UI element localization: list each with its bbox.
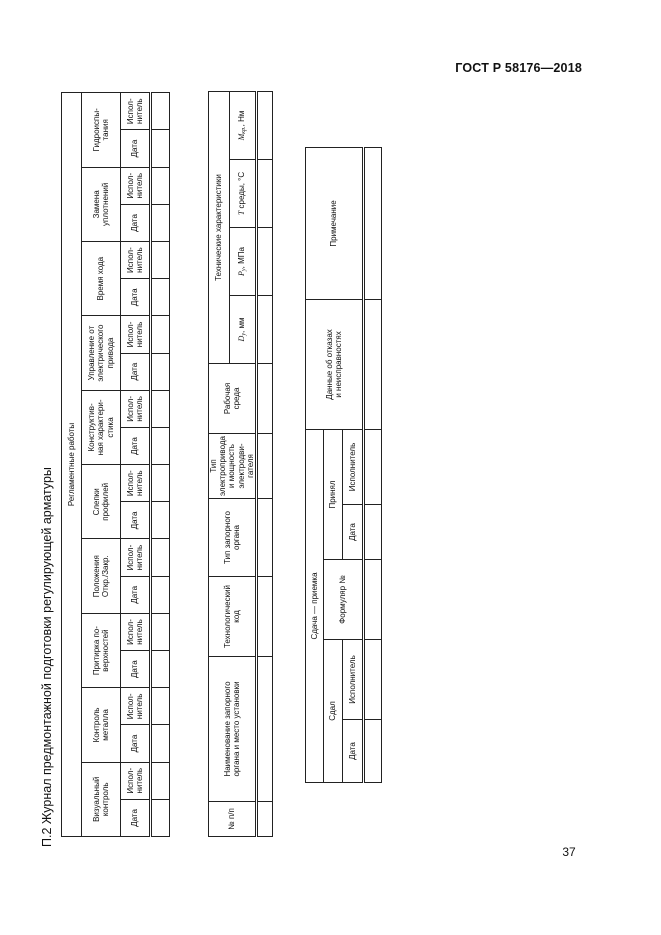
empty-form-cell [151, 688, 170, 725]
parameter-symbol: D [237, 336, 246, 342]
empty-form-cell [151, 353, 170, 390]
header-delivered-by: Сдал [324, 640, 343, 783]
header-travel-time: Время хода [82, 242, 121, 316]
empty-form-cell [151, 316, 170, 353]
parameter-symbol: Т [237, 211, 246, 215]
parameter-unit: среды, °С [237, 172, 246, 211]
empty-form-cell [151, 204, 170, 241]
empty-form-cell [256, 802, 272, 837]
subheader-executor: Испол- нитель [121, 93, 151, 130]
header-hydro-tests: Гидроиспы- тания [82, 93, 121, 168]
empty-form-cell [256, 499, 272, 577]
empty-form-cell [151, 502, 170, 539]
empty-form-cell [364, 429, 382, 504]
empty-form-cell [151, 613, 170, 650]
subheader-date: Дата [121, 204, 151, 241]
header-surface-lapping: Притирка по- верхностей [82, 613, 121, 687]
parameter-subscript: кр. [241, 126, 247, 133]
scheduled-works-table: Регламентные работы Визуальный контроль … [61, 92, 170, 837]
header-nominal-diameter: Dу, мм [229, 296, 256, 364]
empty-form-cell [256, 92, 272, 160]
subheader-date: Дата [121, 651, 151, 688]
empty-form-cell [364, 505, 382, 560]
header-item-number: № п/п [209, 802, 257, 837]
empty-form-cell [364, 720, 382, 783]
header-form-number: Формуляр № [324, 560, 364, 640]
document-page: ГОСТ Р 58176—2018 П.2 Журнал предмонтажн… [0, 0, 661, 935]
empty-form-cell [256, 577, 272, 657]
empty-form-cell [151, 279, 170, 316]
parameter-unit: , мм [237, 318, 246, 333]
subheader-executor: Исполнитель [343, 429, 364, 504]
empty-form-cell [151, 465, 170, 502]
empty-form-cell [151, 651, 170, 688]
valve-identification-table: № п/п Наименование запорного органа и ме… [208, 91, 273, 837]
header-valve-name-location: Наименование запорного органа и место ус… [209, 657, 257, 802]
subheader-date: Дата [121, 502, 151, 539]
empty-form-cell [256, 296, 272, 364]
empty-form-cell [364, 299, 382, 429]
header-nominal-pressure: Pу, МПа [229, 228, 256, 296]
subheader-executor: Испол- нитель [121, 316, 151, 353]
header-technical-characteristics: Технические характеристики [209, 92, 230, 364]
parameter-unit: , МПа [237, 247, 246, 268]
empty-form-cell [151, 130, 170, 167]
empty-form-cell [256, 228, 272, 296]
empty-form-cell [151, 799, 170, 836]
subheader-executor: Исполнитель [343, 640, 364, 720]
empty-form-cell [256, 434, 272, 499]
header-seal-replacement: Замена уплотнений [82, 167, 121, 241]
parameter-symbol: М [237, 134, 246, 141]
empty-form-cell [151, 93, 170, 130]
header-shutoff-type: Тип запорного органа [209, 499, 257, 577]
subheader-executor: Испол- нитель [121, 390, 151, 427]
subheader-executor: Испол- нитель [121, 613, 151, 650]
parameter-subscript: у [241, 333, 247, 336]
header-design-characteristic: Конструктив- ная характери- стика [82, 390, 121, 464]
appendix-title: П.2 Журнал предмонтажной подготовки регу… [40, 467, 54, 847]
subheader-date: Дата [121, 576, 151, 613]
subheader-executor: Испол- нитель [121, 539, 151, 576]
empty-form-cell [151, 242, 170, 279]
parameter-unit: , Нм [237, 111, 246, 127]
subheader-date: Дата [121, 725, 151, 762]
subheader-date: Дата [343, 505, 364, 560]
empty-form-cell [151, 576, 170, 613]
subheader-date: Дата [121, 279, 151, 316]
subheader-date: Дата [121, 130, 151, 167]
empty-form-cell [364, 147, 382, 299]
subheader-executor: Испол- нитель [121, 688, 151, 725]
header-failure-data: Данные об отказах и неисправностях [306, 299, 364, 429]
subheader-date: Дата [121, 427, 151, 464]
header-metal-control: Контроль металла [82, 688, 121, 762]
header-drive-type-power: Тип электропривода и мощность электродви… [209, 434, 257, 499]
handover-acceptance-table: Сдача — приемка Данные об отказах и неис… [305, 147, 382, 783]
subheader-executor: Испол- нитель [121, 762, 151, 799]
page-number: 37 [554, 845, 584, 859]
subheader-executor: Испол- нитель [121, 242, 151, 279]
subheader-date: Дата [121, 799, 151, 836]
empty-form-cell [151, 427, 170, 464]
subheader-date: Дата [121, 353, 151, 390]
header-torque: Мкр., Нм [229, 92, 256, 160]
empty-form-cell [151, 539, 170, 576]
empty-form-cell [151, 390, 170, 427]
header-handover-acceptance: Сдача — приемка [306, 429, 324, 782]
subheader-executor: Испол- нитель [121, 465, 151, 502]
works-table-title: Регламентные работы [62, 93, 82, 837]
header-technological-code: Технологический код [209, 577, 257, 657]
empty-form-cell [151, 167, 170, 204]
subheader-executor: Испол- нитель [121, 167, 151, 204]
header-profile-casts: Слепки профилей [82, 465, 121, 539]
header-open-close-positions: Положения Откр./Закр. [82, 539, 121, 613]
header-electric-drive-control: Управление от электрического привода [82, 316, 121, 390]
empty-form-cell [151, 725, 170, 762]
header-working-medium: Рабочая среда [209, 364, 257, 434]
empty-form-cell [256, 364, 272, 434]
header-note: Примечание [306, 147, 364, 299]
header-accepted-by: Принял [324, 429, 343, 559]
empty-form-cell [364, 640, 382, 720]
header-visual-control: Визуальный контроль [82, 762, 121, 836]
rotated-landscape-content: П.2 Журнал предмонтажной подготовки регу… [0, 0, 661, 935]
parameter-symbol: P [237, 271, 246, 276]
subheader-date: Дата [343, 720, 364, 783]
empty-form-cell [151, 762, 170, 799]
empty-form-cell [256, 160, 272, 228]
parameter-subscript: у [241, 268, 247, 271]
empty-form-cell [364, 560, 382, 640]
header-medium-temperature: Т среды, °С [229, 160, 256, 228]
empty-form-cell [256, 657, 272, 802]
